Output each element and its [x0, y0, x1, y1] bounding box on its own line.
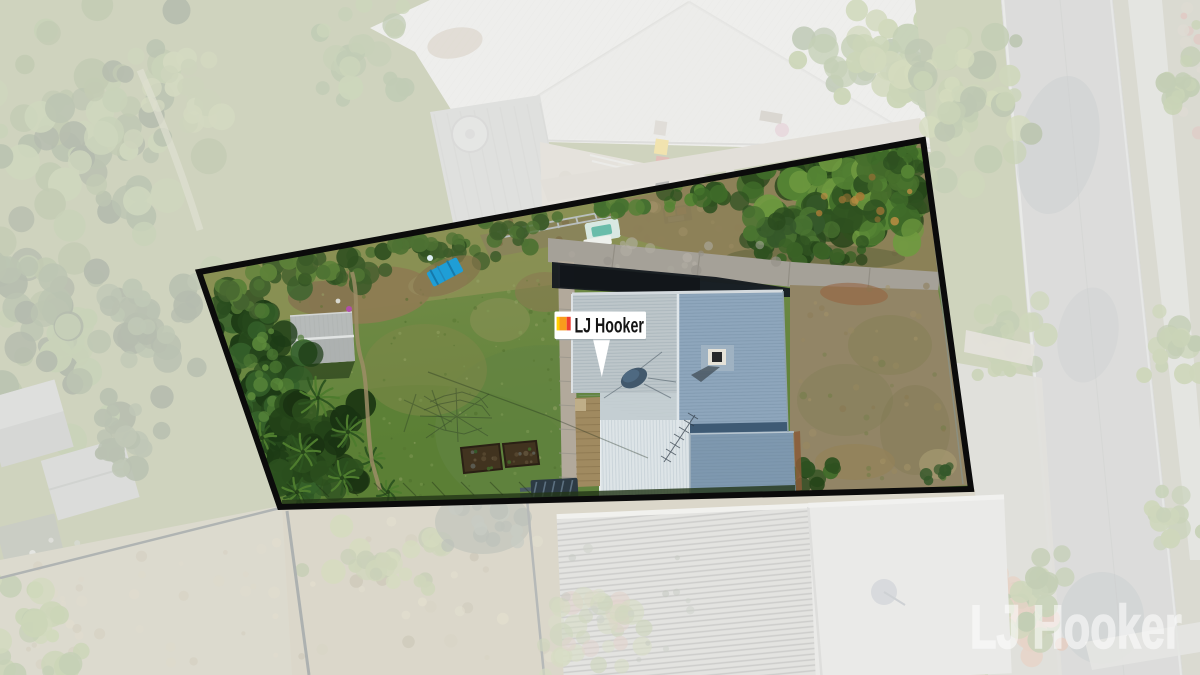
svg-text:LJ Hooker: LJ Hooker: [970, 594, 1182, 662]
svg-text:LJ Hooker: LJ Hooker: [575, 314, 644, 338]
